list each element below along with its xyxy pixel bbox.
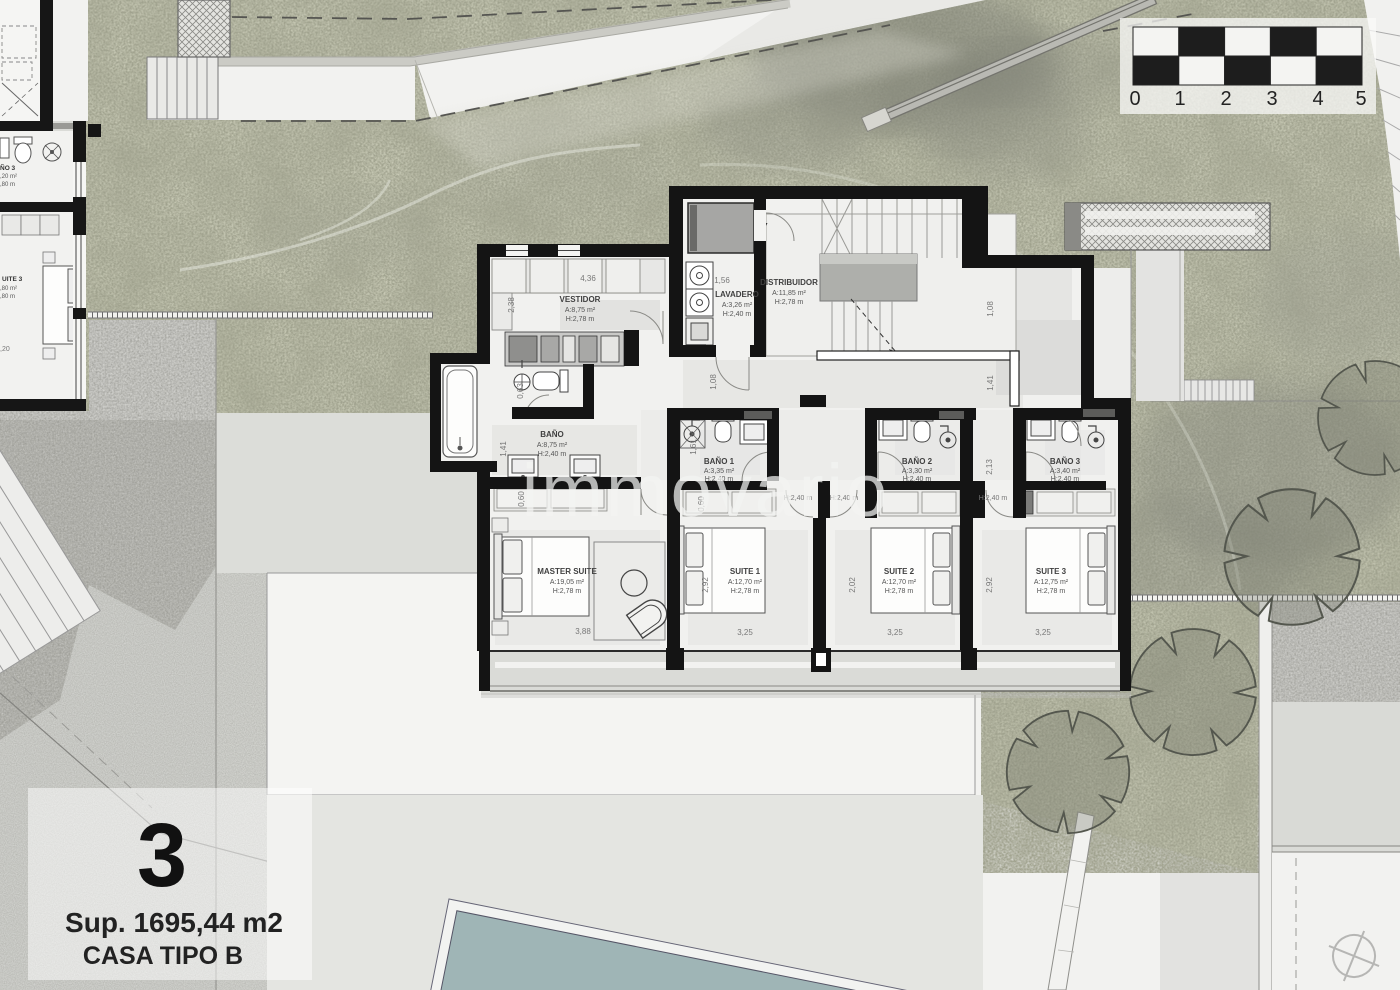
svg-text:1,08: 1,08 — [709, 374, 718, 390]
svg-text:0: 0 — [1129, 88, 1140, 110]
svg-text:SUITE 3: SUITE 3 — [1036, 567, 1067, 576]
svg-text:A:12,70 m²: A:12,70 m² — [882, 579, 917, 586]
svg-text:A:12,75 m²: A:12,75 m² — [1034, 579, 1069, 586]
svg-text:,20: ,20 — [0, 346, 10, 353]
svg-text:H:2,78 m: H:2,78 m — [775, 299, 804, 306]
svg-text:SUITE 2: SUITE 2 — [884, 567, 915, 576]
svg-text:DISTRIBUIDOR: DISTRIBUIDOR — [760, 278, 818, 287]
svg-text:H:2,78 m: H:2,78 m — [731, 588, 760, 595]
svg-text:H:2,78 m: H:2,78 m — [566, 316, 595, 323]
svg-text:MASTER SUITE: MASTER SUITE — [537, 567, 597, 576]
svg-text:2,92: 2,92 — [701, 577, 710, 593]
svg-text:,20 m²: ,20 m² — [0, 174, 17, 180]
svg-text:1,56: 1,56 — [714, 276, 730, 285]
svg-text:H:2,78 m: H:2,78 m — [1037, 588, 1066, 595]
svg-text:,80 m: ,80 m — [0, 182, 15, 188]
svg-text:BAÑO: BAÑO — [540, 430, 564, 439]
svg-text:H:2,40 m: H:2,40 m — [723, 311, 752, 318]
svg-text:,80 m: ,80 m — [0, 294, 15, 300]
svg-text:3,25: 3,25 — [737, 628, 753, 637]
svg-text:3,25: 3,25 — [1035, 628, 1051, 637]
svg-text:3,88: 3,88 — [575, 627, 591, 636]
svg-text:A:3,30 m²: A:3,30 m² — [902, 468, 933, 475]
svg-text:H:2,78 m: H:2,78 m — [553, 588, 582, 595]
svg-text:1,08: 1,08 — [986, 301, 995, 317]
svg-text:1,41: 1,41 — [986, 375, 995, 391]
svg-text:2,92: 2,92 — [985, 577, 994, 593]
svg-text:4,36: 4,36 — [580, 274, 596, 283]
svg-text:VESTIDOR: VESTIDOR — [560, 295, 601, 304]
svg-text:A:12,70 m²: A:12,70 m² — [728, 579, 763, 586]
svg-text:3: 3 — [1266, 88, 1277, 110]
svg-text:2: 2 — [1220, 88, 1231, 110]
svg-text:A:8,75 m²: A:8,75 m² — [537, 442, 568, 449]
svg-text:A:3,40 m²: A:3,40 m² — [1050, 468, 1081, 475]
svg-text:Sup. 1695,44 m2: Sup. 1695,44 m2 — [65, 907, 283, 938]
svg-text:4: 4 — [1312, 88, 1323, 110]
svg-text:1,41: 1,41 — [499, 441, 508, 457]
svg-text:LAVADERO: LAVADERO — [715, 290, 759, 299]
svg-text:A:11,85 m²: A:11,85 m² — [772, 290, 806, 297]
svg-text:0,63: 0,63 — [516, 383, 525, 399]
svg-text:CASA TIPO B: CASA TIPO B — [83, 942, 243, 970]
svg-text:3,25: 3,25 — [887, 628, 903, 637]
svg-text:3: 3 — [137, 806, 187, 906]
svg-text:2,13: 2,13 — [985, 459, 994, 475]
svg-text:H:2,40 m: H:2,40 m — [903, 476, 932, 483]
svg-text:A:3,26 m²: A:3,26 m² — [722, 302, 753, 309]
svg-text:H:2,40 m: H:2,40 m — [979, 495, 1008, 502]
svg-text:SUITE 1: SUITE 1 — [730, 567, 761, 576]
svg-text:2,02: 2,02 — [848, 577, 857, 593]
svg-text:UITE 3: UITE 3 — [2, 276, 23, 283]
svg-text:A:8,75 m²: A:8,75 m² — [565, 307, 596, 314]
svg-text:immovario: immovario — [522, 449, 890, 532]
svg-text:1: 1 — [1174, 88, 1185, 110]
svg-text:A:19,05 m²: A:19,05 m² — [550, 579, 585, 586]
svg-text:BAÑO 3: BAÑO 3 — [1050, 457, 1081, 466]
svg-text:BAÑO 2: BAÑO 2 — [902, 457, 933, 466]
svg-text:ÑO 3: ÑO 3 — [0, 163, 16, 172]
svg-text:,80 m²: ,80 m² — [0, 286, 17, 292]
svg-text:2,38: 2,38 — [507, 297, 516, 313]
svg-text:H:2,78 m: H:2,78 m — [885, 588, 914, 595]
svg-text:5: 5 — [1355, 88, 1366, 110]
svg-text:H:2,40 m: H:2,40 m — [1051, 476, 1080, 483]
